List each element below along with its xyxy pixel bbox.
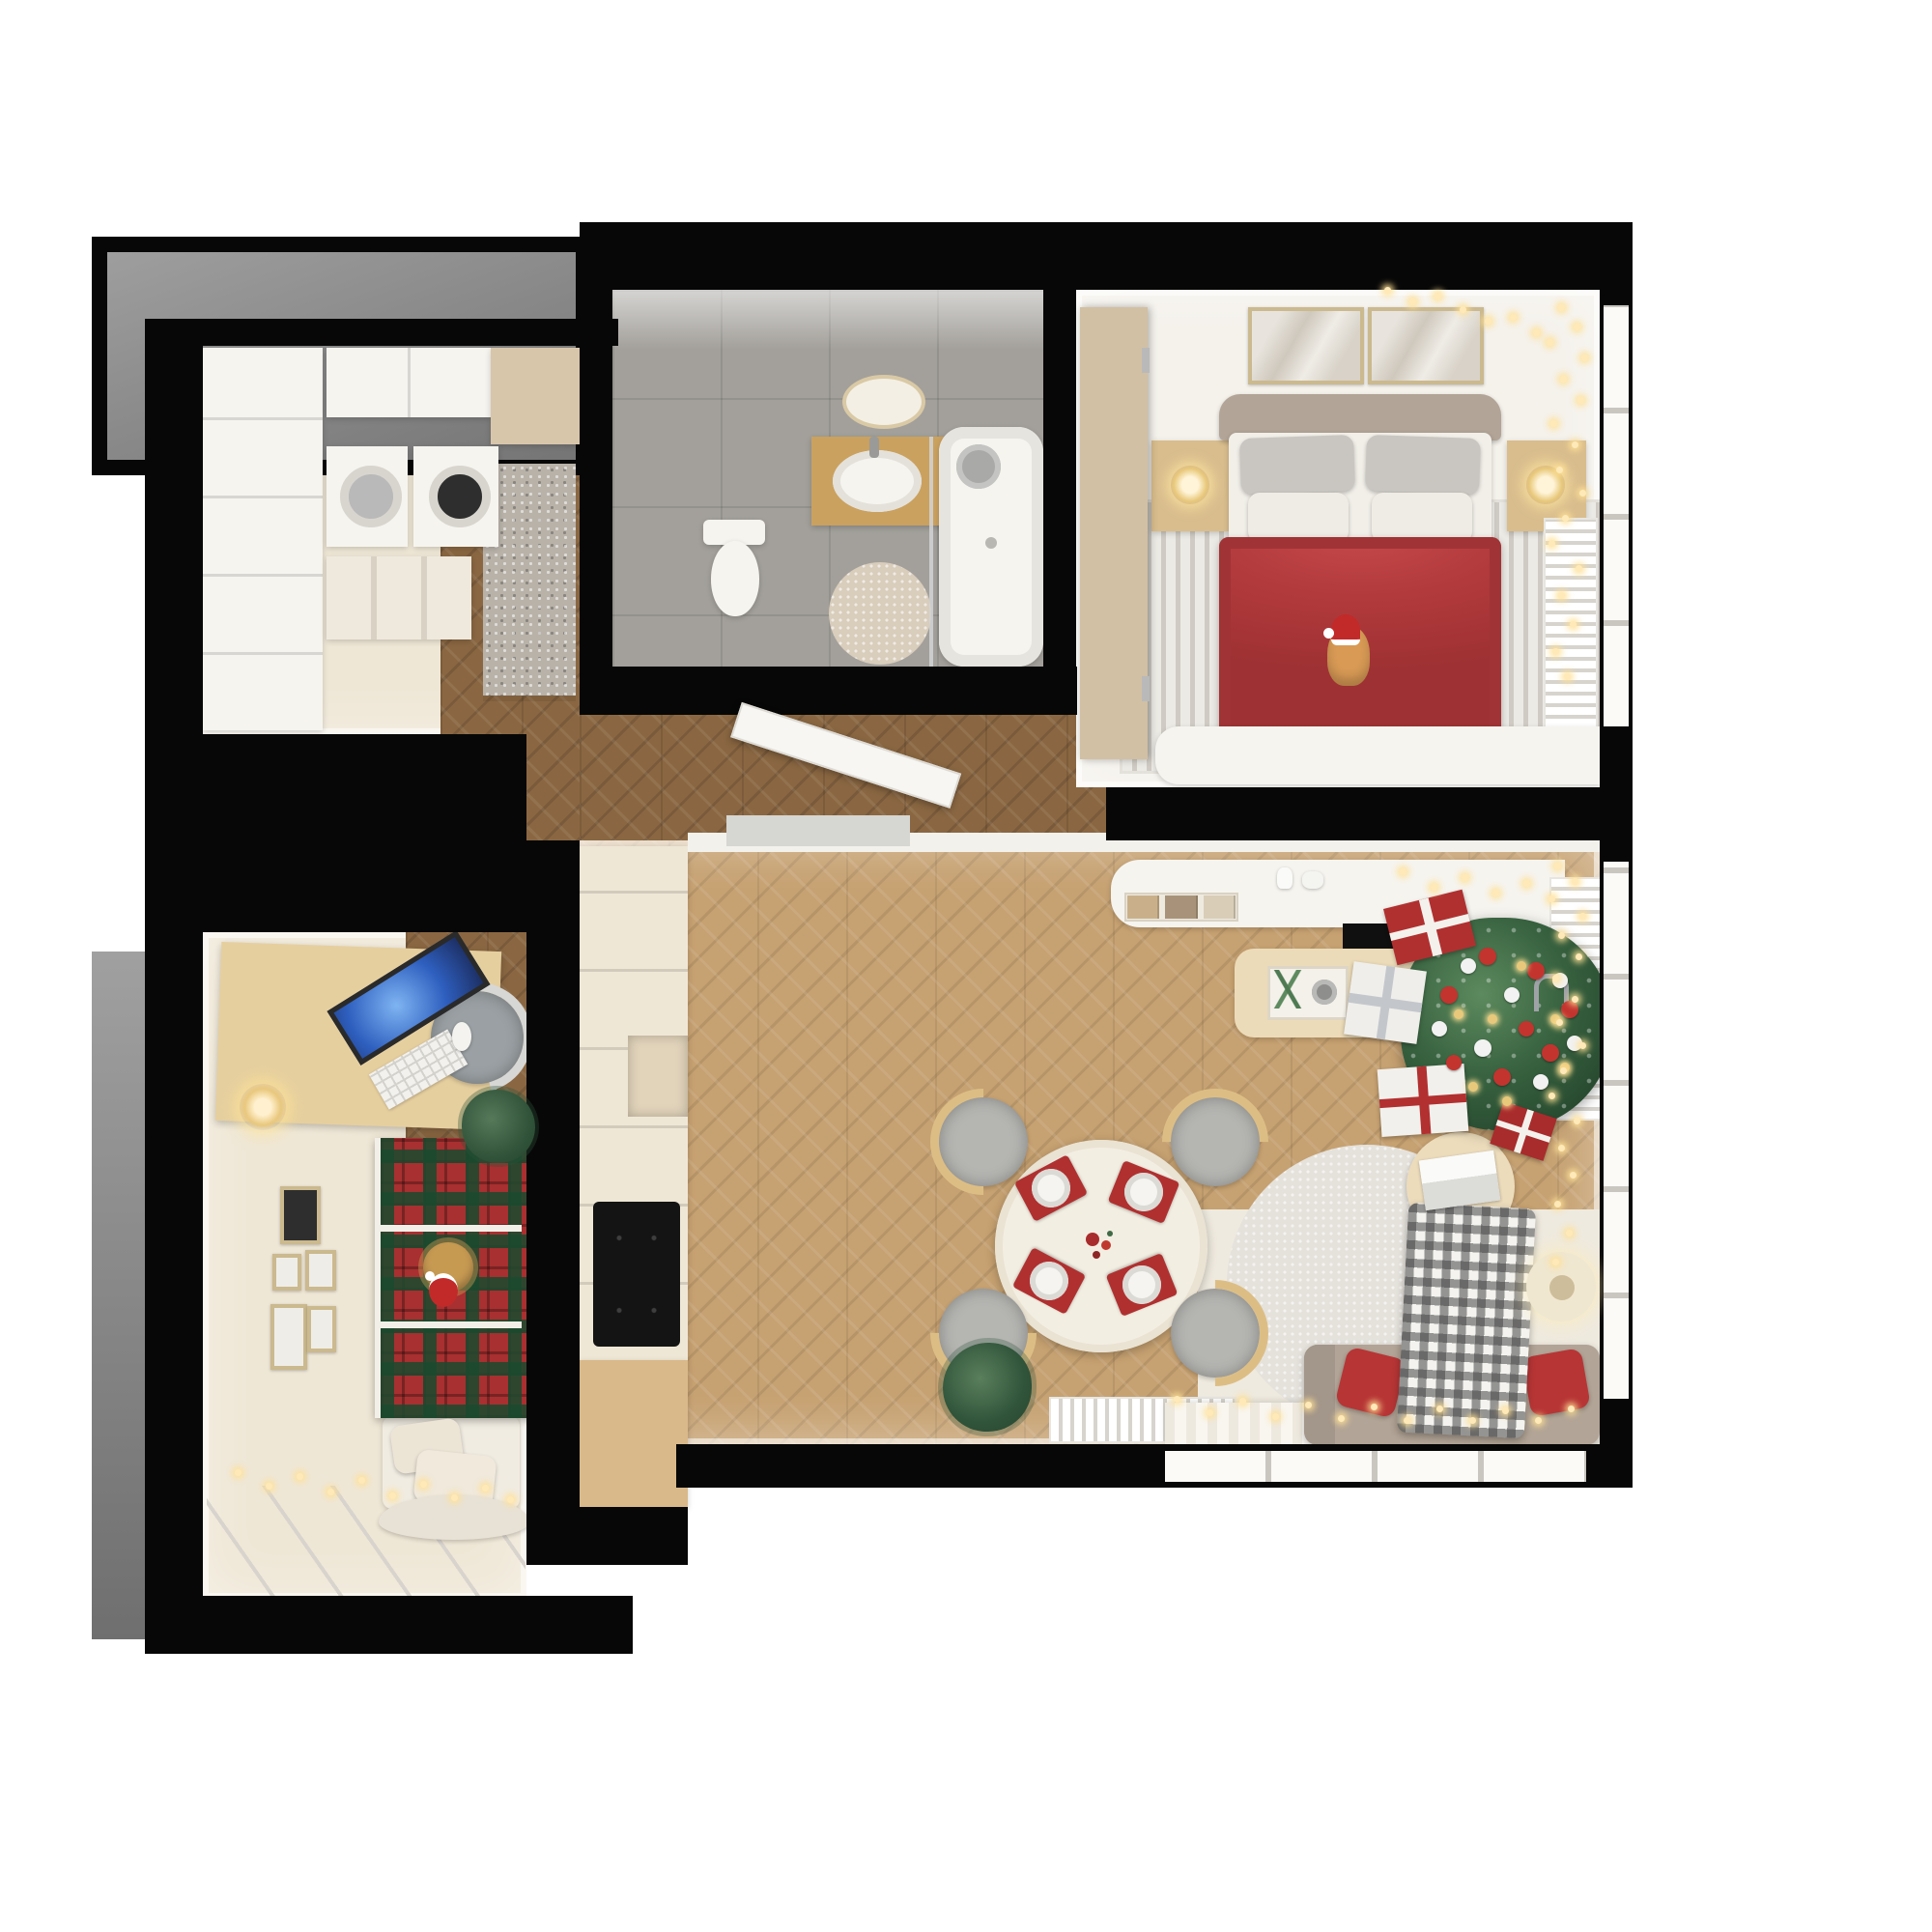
doorway-lintel xyxy=(726,815,910,846)
kids-frame-2 xyxy=(272,1254,301,1291)
sofa-red-pillow-right xyxy=(1521,1348,1591,1417)
nightstand-lamp-left xyxy=(1171,466,1209,504)
wall-hall-kids-block xyxy=(145,734,526,932)
bath-faucet-icon xyxy=(869,437,879,458)
bathroom-wall-sheen xyxy=(612,290,1043,350)
nightstand-lamp-right xyxy=(1526,466,1565,504)
living-plant xyxy=(943,1343,1032,1432)
living-window xyxy=(1604,862,1629,1399)
bedroom-entry-door-open xyxy=(1080,307,1148,759)
kitchen-niche-shelf xyxy=(628,1036,688,1117)
tartan-trim-line xyxy=(375,1321,522,1328)
sofa-armrest xyxy=(1304,1345,1335,1445)
wall-top-main xyxy=(580,222,1633,290)
dining-chair xyxy=(939,1097,1028,1186)
gift-box-white-1 xyxy=(1344,961,1427,1044)
bed-pillow-gray-right xyxy=(1365,435,1481,495)
floor-lamp-center-icon xyxy=(1549,1275,1575,1300)
console-books xyxy=(1124,893,1238,922)
wall-kids-bottom xyxy=(145,1596,633,1654)
bedroom-foot-dresser xyxy=(1155,726,1600,784)
washer-door-icon xyxy=(340,466,402,527)
wall-bathroom-left xyxy=(580,290,612,715)
shower-head-icon xyxy=(956,444,1001,489)
desk-mouse xyxy=(452,1022,471,1051)
kitchen-wood-base xyxy=(580,1360,688,1507)
bath-mirror xyxy=(842,375,925,429)
door-hinge-icon xyxy=(1142,676,1150,701)
dryer-door-icon xyxy=(429,466,491,527)
santa-hat-icon xyxy=(1331,614,1360,645)
desk-lamp-glow xyxy=(240,1084,286,1130)
dining-chair xyxy=(1171,1097,1260,1186)
book-spine xyxy=(1204,895,1236,919)
bedroom-art-frame-right xyxy=(1368,307,1484,384)
tray-plant-sprig-icon xyxy=(1273,970,1302,1009)
book-spine xyxy=(1165,895,1197,919)
kids-frame-5 xyxy=(307,1306,336,1352)
kids-frame-4 xyxy=(270,1304,307,1370)
bed-pillow-white-left xyxy=(1248,493,1349,543)
shower-glass-screen xyxy=(929,437,933,667)
tray-vase-icon xyxy=(1312,980,1337,1005)
living-bottom-window xyxy=(1165,1451,1586,1482)
hall-beige-cabinet xyxy=(491,348,580,444)
console-figurine-icon xyxy=(1277,867,1293,889)
hall-top-cabinet xyxy=(327,348,491,417)
bath-sink xyxy=(833,450,922,512)
tartan-trim-line xyxy=(375,1225,522,1232)
wall-kitchen-bottom-step xyxy=(526,1507,688,1565)
wall-kitchen-left xyxy=(526,840,580,1517)
kids-plant xyxy=(462,1090,535,1163)
wall-bathroom-right xyxy=(1043,290,1076,667)
bedroom-window xyxy=(1604,305,1629,726)
console-figurine-icon xyxy=(1302,871,1323,889)
dog-hat-pom-icon xyxy=(425,1271,435,1281)
gift-box-white-2 xyxy=(1378,1064,1469,1137)
toilet-bowl xyxy=(711,541,759,616)
santa-hat-pom-icon xyxy=(1323,628,1334,639)
bedroom-art-frame-left xyxy=(1248,307,1364,384)
hall-cubby-shelf xyxy=(327,556,471,639)
wall-bathroom-bottom xyxy=(580,667,1077,715)
wall-top-hall xyxy=(145,319,618,346)
kids-frame-3 xyxy=(305,1250,336,1291)
kids-bench-curve xyxy=(379,1495,529,1540)
door-hinge-icon xyxy=(1142,348,1150,373)
kids-frame-1 xyxy=(280,1186,321,1244)
bed-pillow-white-right xyxy=(1372,493,1472,543)
bathtub-drain-icon xyxy=(985,537,997,549)
bed-pillow-gray-left xyxy=(1239,435,1355,495)
book-spine xyxy=(1127,895,1159,919)
bathroom-round-rug xyxy=(829,562,931,665)
kitchen-induction-hob xyxy=(593,1202,680,1347)
laptop-icon xyxy=(1419,1151,1500,1210)
dining-chair xyxy=(1171,1289,1260,1378)
island-faucet-icon xyxy=(1534,974,1569,1011)
dining-centerpiece-berries xyxy=(1086,1233,1099,1246)
floorplan xyxy=(0,0,1932,1932)
hall-wardrobe xyxy=(203,348,323,730)
wall-bedroom-living-divider xyxy=(1106,787,1600,840)
wall-left-outer xyxy=(145,319,203,1604)
checkered-throw xyxy=(1397,1203,1536,1439)
